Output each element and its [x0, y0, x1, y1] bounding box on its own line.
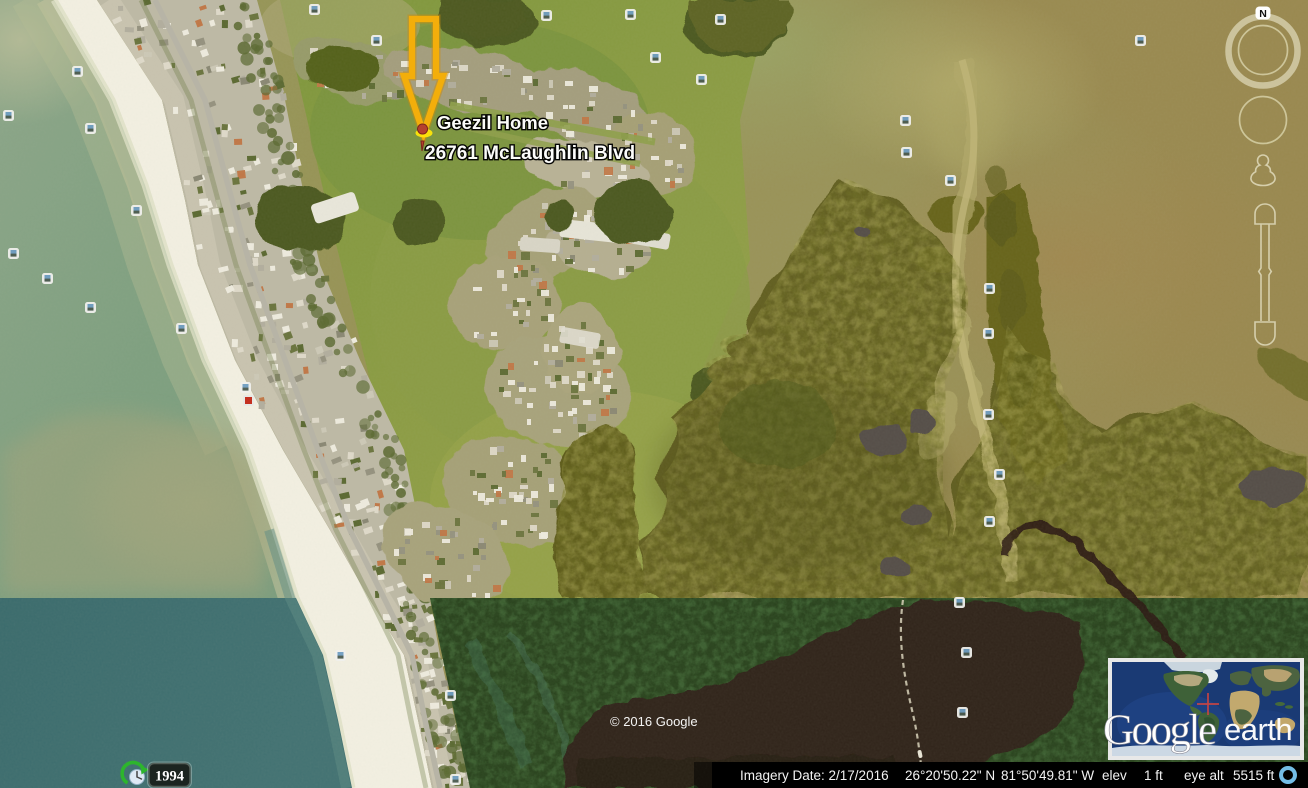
svg-text:1 ft: 1 ft: [1144, 768, 1163, 783]
svg-text:5515 ft: 5515 ft: [1233, 768, 1275, 783]
svg-text:© 2016 Google: © 2016 Google: [610, 714, 698, 729]
svg-text:elev: elev: [1102, 768, 1127, 783]
svg-text:81°50'49.81" W: 81°50'49.81" W: [1001, 768, 1094, 783]
svg-text:N: N: [1259, 8, 1267, 20]
svg-text:1994: 1994: [155, 769, 184, 785]
svg-text:Geezil Home: Geezil Home: [437, 112, 548, 133]
svg-text:26°20'50.22" N: 26°20'50.22" N: [905, 768, 995, 783]
svg-text:eye alt: eye alt: [1184, 768, 1224, 783]
svg-text:Google: Google: [1103, 707, 1216, 754]
svg-text:26761 McLaughlin Blvd: 26761 McLaughlin Blvd: [425, 143, 635, 164]
svg-text:earth: earth: [1224, 712, 1292, 747]
svg-text:Imagery Date: 2/17/2016: Imagery Date: 2/17/2016: [740, 768, 889, 783]
